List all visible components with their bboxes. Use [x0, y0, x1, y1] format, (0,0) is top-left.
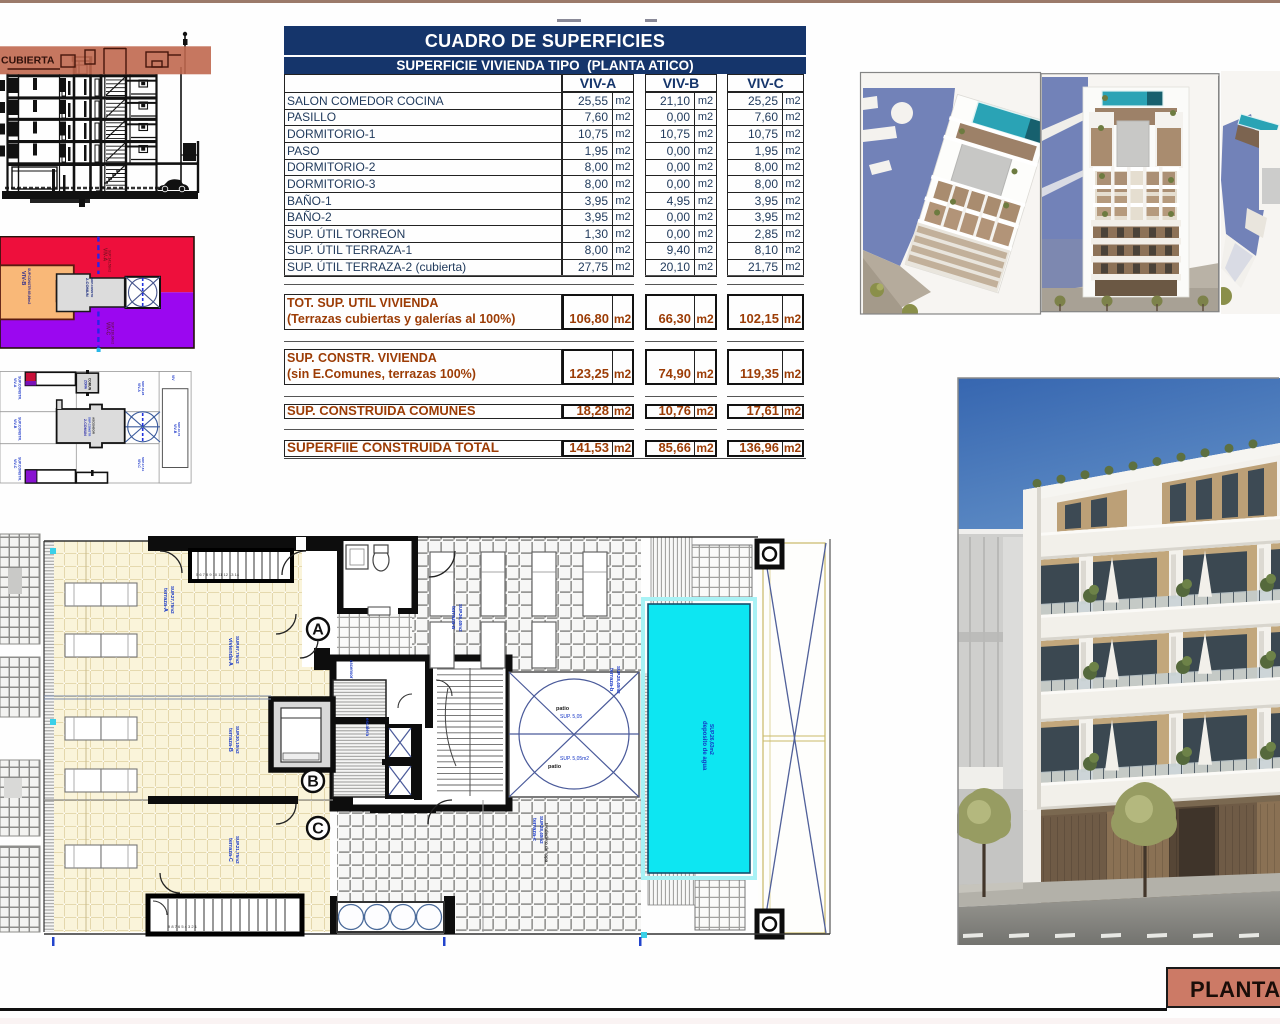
svg-text:SUP.27,75m2: SUP.27,75m2: [170, 586, 175, 614]
svg-text:SUP.21,75m2: SUP.21,75m2: [235, 836, 240, 864]
svg-text:terraza-a: terraza-a: [450, 606, 456, 630]
svg-text:SUP. 5,05: SUP. 5,05: [560, 714, 582, 720]
svg-text:2-COMUN: 2-COMUN: [83, 419, 87, 436]
svg-text:SUP.CONSTR.: SUP.CONSTR.: [18, 457, 22, 481]
svg-text:tendedero de ropa: tendedero de ropa: [544, 823, 549, 863]
svg-text:escalera: escalera: [365, 718, 370, 737]
svg-text:SUP. 5,05m2: SUP. 5,05m2: [560, 756, 589, 762]
svg-text:ASCENSOR: ASCENSOR: [92, 417, 96, 435]
svg-text:VIV-A: VIV-A: [102, 248, 108, 261]
svg-text:SUP.97,75m2: SUP.97,75m2: [235, 636, 240, 664]
svg-text:COMUN: COMUN: [88, 378, 92, 391]
svg-text:VIV-A: VIV-A: [13, 378, 17, 388]
svg-text:SUP.18,28: SUP.18,28: [141, 381, 145, 395]
svg-text:SUP:141,53m2: SUP:141,53m2: [108, 250, 112, 272]
svg-text:SUP.26,40m2: SUP.26,40m2: [458, 604, 463, 632]
svg-text:ZONA: ZONA: [84, 380, 88, 390]
svg-text:terraza-B: terraza-B: [227, 728, 233, 752]
svg-text:terraza-C: terraza-C: [227, 838, 233, 862]
svg-text:SUP.CONSTR: SUP.CONSTR: [90, 278, 94, 298]
svg-text:VIV-B: VIV-B: [20, 271, 26, 285]
svg-text:patio: patio: [556, 706, 570, 712]
svg-text:SUP:136,96m2: SUP:136,96m2: [111, 322, 115, 344]
svg-text:VIV: VIV: [171, 375, 175, 381]
svg-text:9 8 7 6 5 4 3 2 1: 9 8 7 6 5 4 3 2 1: [168, 924, 198, 929]
svg-text:patio: patio: [548, 764, 562, 770]
svg-text:deposito de agua: deposito de agua: [701, 721, 707, 771]
svg-text:SUP.CONSTR.: SUP.CONSTR.: [18, 376, 22, 400]
svg-text:CUBIERTA: CUBIERTA: [1, 55, 55, 67]
svg-text:VIV-B: VIV-B: [173, 424, 177, 434]
svg-text:C: C: [312, 821, 324, 838]
svg-text:vivienda-A: vivienda-A: [227, 638, 233, 666]
svg-text:SUP.CONSTR: SUP.CONSTR: [88, 417, 92, 437]
svg-text:SUP.17,61: SUP.17,61: [141, 457, 145, 471]
svg-text:SUP.26,63m2: SUP.26,63m2: [708, 724, 714, 755]
svg-text:terraza-c: terraza-c: [531, 818, 537, 841]
svg-text:A: A: [312, 622, 324, 639]
svg-text:ascensor: ascensor: [349, 660, 354, 679]
svg-text:VIV-C: VIV-C: [13, 459, 17, 469]
svg-text:SUP.CONSTR.: SUP.CONSTR.: [18, 417, 22, 441]
svg-text:VIV-A: VIV-A: [137, 383, 141, 392]
svg-text:terraza-A: terraza-A: [162, 588, 168, 612]
svg-text:VIV-C: VIV-C: [105, 322, 111, 335]
svg-text:SUP.28,40m2: SUP.28,40m2: [616, 666, 621, 694]
svg-text:VIV-C: VIV-C: [137, 459, 141, 468]
svg-text:SUP.CONSTR:85,66m2: SUP.CONSTR:85,66m2: [27, 268, 31, 304]
svg-text:SUP.10,76: SUP.10,76: [177, 422, 181, 436]
svg-text:SUP.28,40m2: SUP.28,40m2: [539, 816, 544, 844]
svg-text:VIV-B: VIV-B: [13, 419, 17, 429]
svg-text:B: B: [307, 774, 319, 791]
svg-text:5 6 7 8 9 10 11 12 13 14: 5 6 7 8 9 10 11 12 13 14: [196, 572, 240, 577]
svg-text:terraza-b: terraza-b: [608, 668, 614, 692]
svg-text:2-COMUN: 2-COMUN: [85, 278, 90, 297]
svg-text:SUP.30,10m2: SUP.30,10m2: [235, 726, 240, 754]
